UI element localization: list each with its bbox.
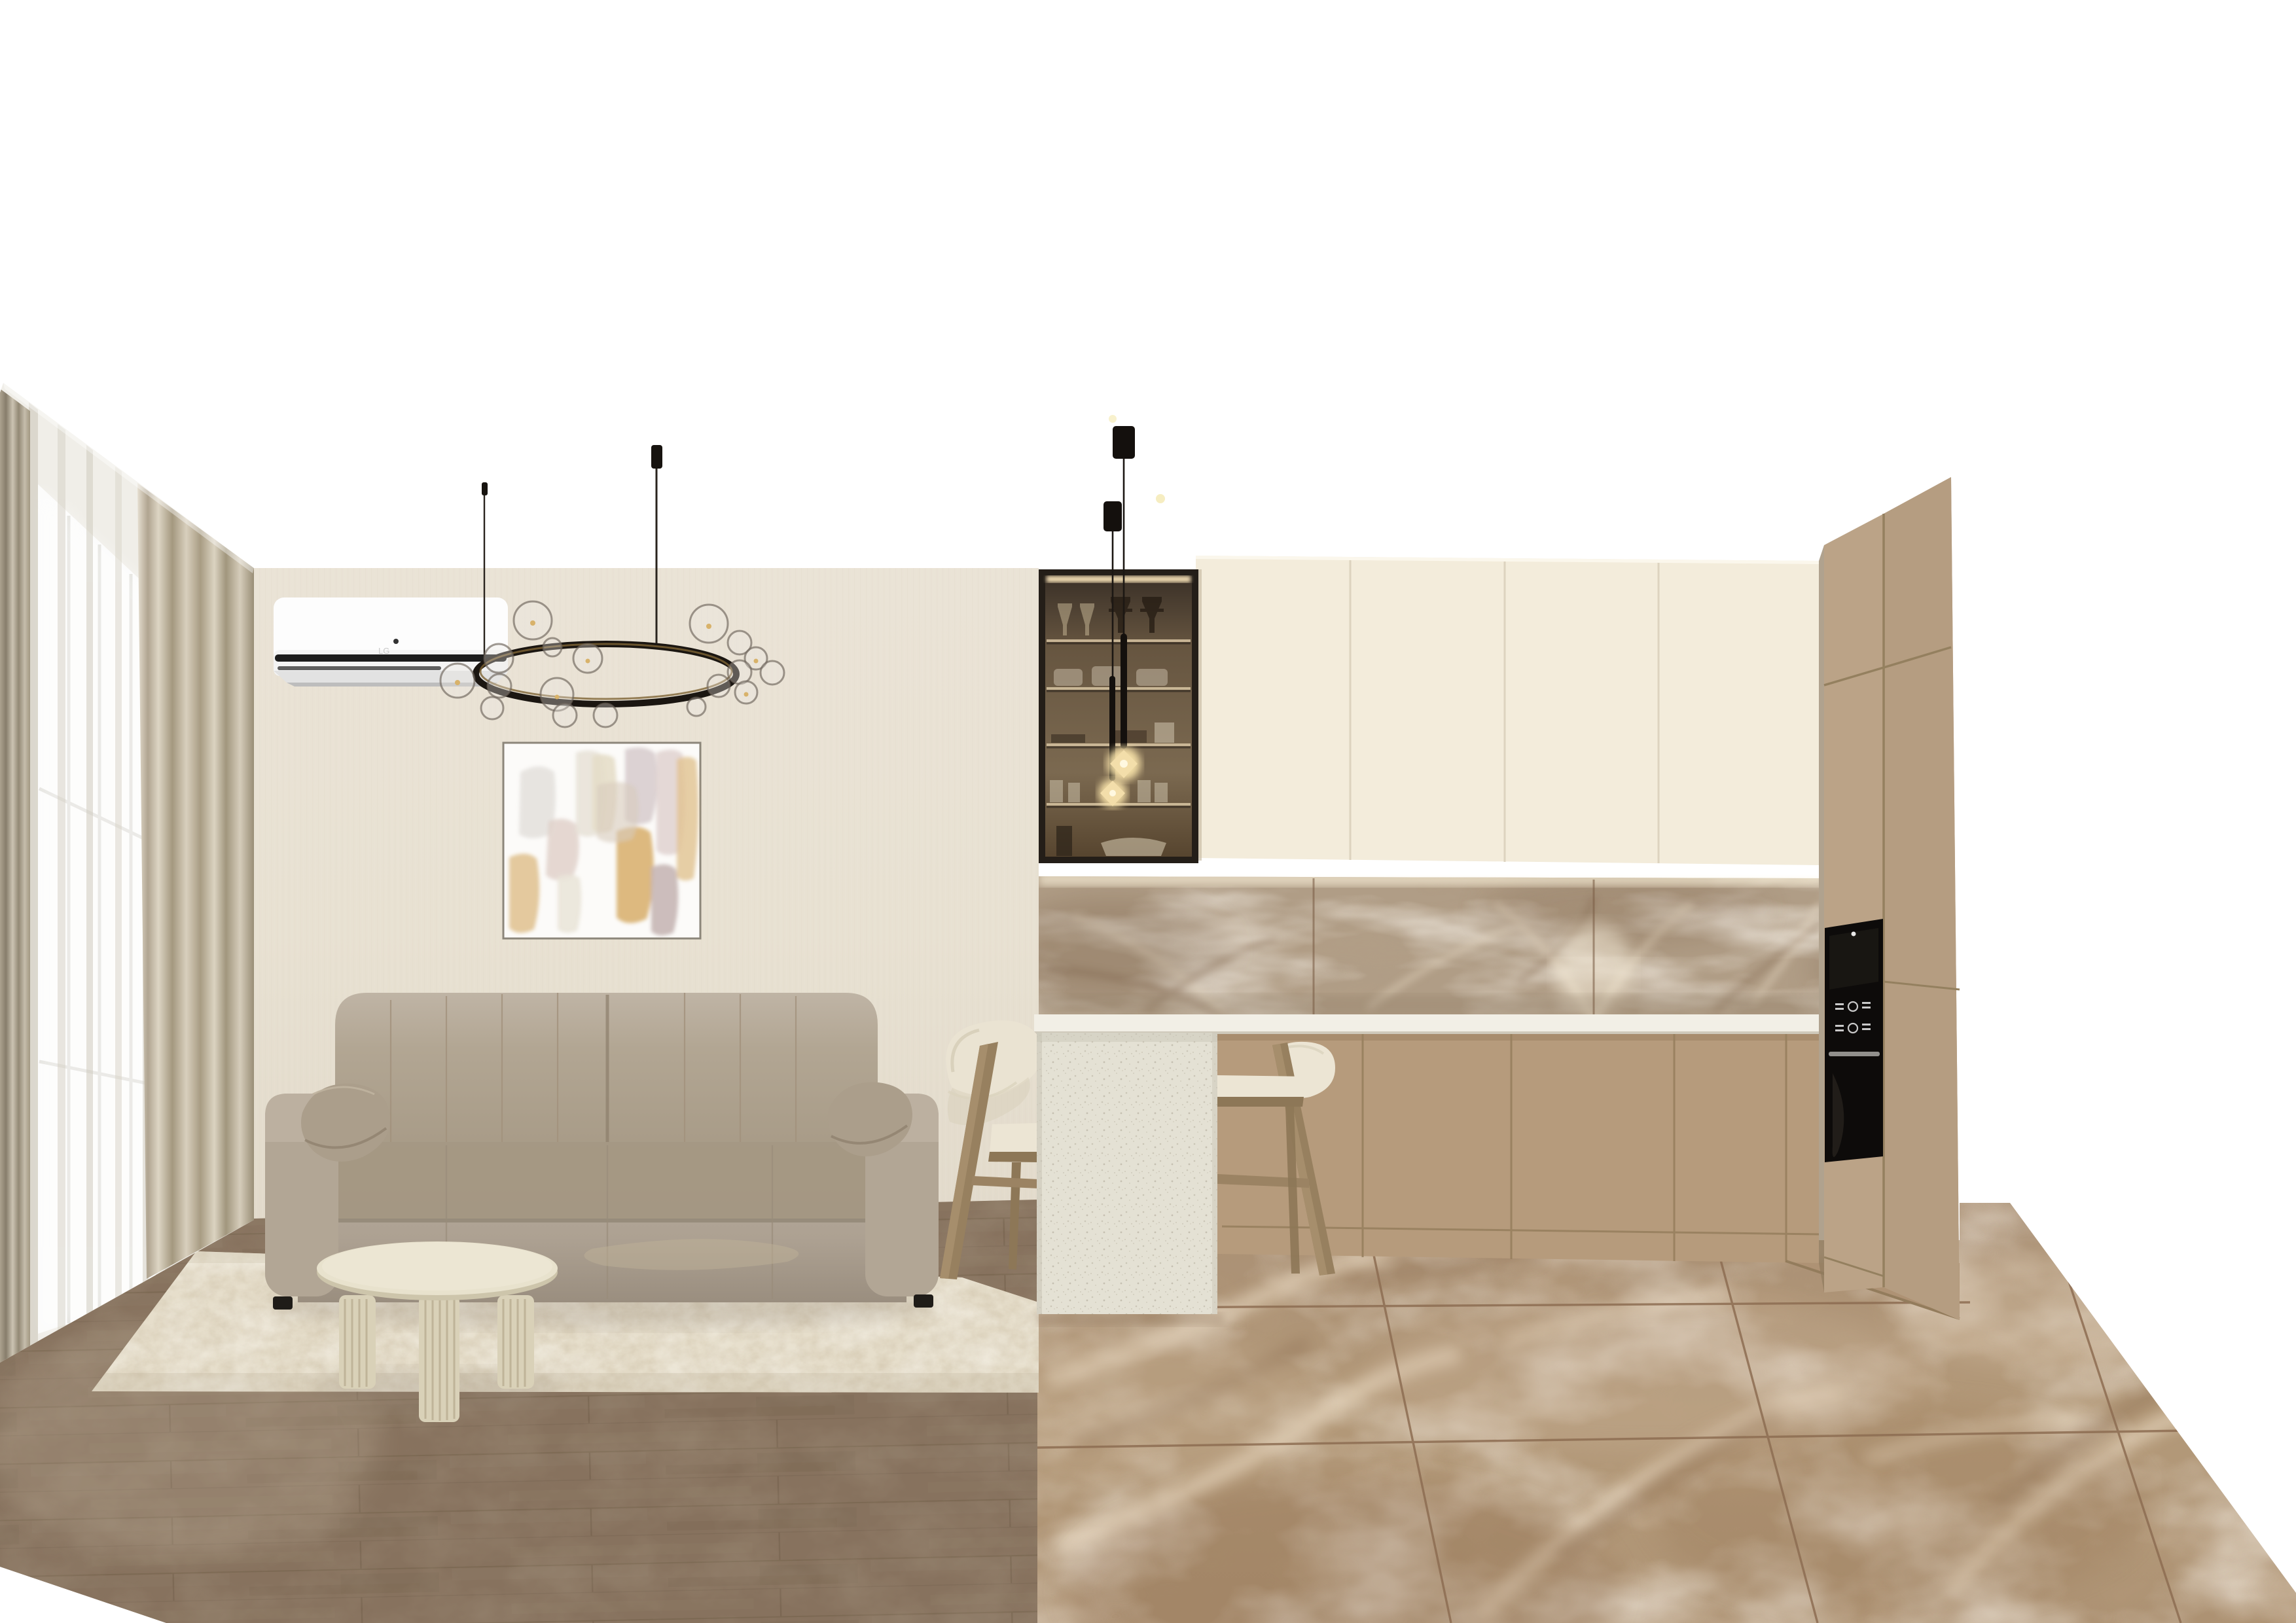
svg-text:LG: LG: [378, 646, 389, 656]
